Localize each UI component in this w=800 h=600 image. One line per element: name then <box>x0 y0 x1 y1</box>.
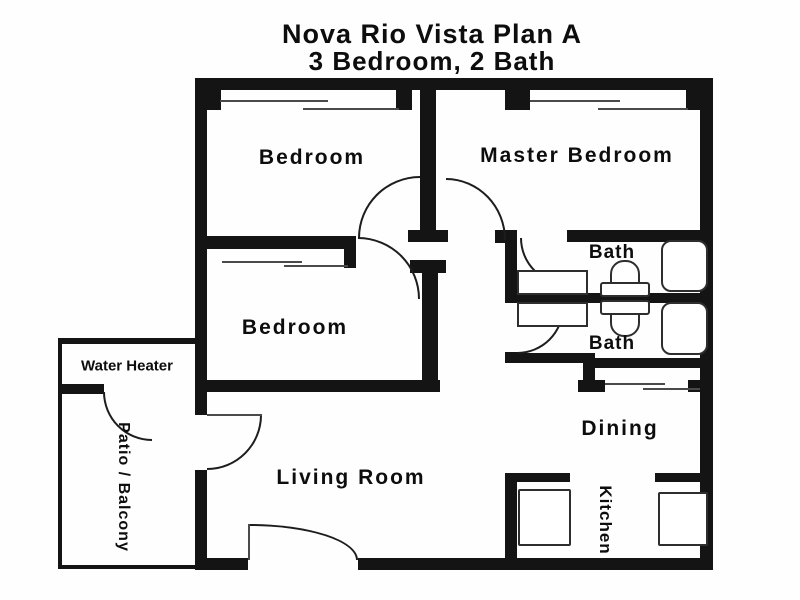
window-pane-line <box>220 100 328 102</box>
room-label-master-bedroom: Master Bedroom <box>480 144 674 168</box>
wall-bedroom-divider <box>420 78 436 240</box>
outer-wall-bottom <box>358 558 713 570</box>
bathtub <box>661 240 708 292</box>
plan-title-line1: Nova Rio Vista Plan A <box>282 20 582 48</box>
closet-slider-line <box>284 265 348 267</box>
room-label-kitchen: Kitchen <box>595 485 615 554</box>
door-arc-bedroom-mid-left <box>358 237 420 299</box>
wall-living-top <box>195 380 440 392</box>
outer-wall-top <box>195 78 713 90</box>
door-leaf-line <box>248 524 250 560</box>
patio-wall-bottom <box>58 565 198 569</box>
bathtub <box>661 302 708 355</box>
stove <box>518 489 571 546</box>
toilet-base <box>600 282 650 297</box>
window-jamb <box>686 90 700 110</box>
closet-slider-line <box>222 261 302 263</box>
door-arc-bedroom-top-left <box>358 176 420 238</box>
wall-water-heater-top <box>58 338 198 344</box>
toilet-base <box>600 300 650 315</box>
room-label-bedroom-mid-left: Bedroom <box>242 316 348 340</box>
room-label-bath-top: Bath <box>589 242 635 264</box>
closet-slider-line <box>643 388 700 390</box>
room-label-dining: Dining <box>581 417 658 441</box>
wall-bath-bottom <box>505 353 595 363</box>
wall-kitchen-left <box>505 473 517 558</box>
wall-central <box>422 262 438 392</box>
wall-closet-cap <box>688 380 700 392</box>
closet-slider-line <box>605 383 665 385</box>
room-label-bedroom-top-left: Bedroom <box>259 146 365 170</box>
bathroom-sink-counter <box>517 270 588 295</box>
wall-sink-stub <box>655 473 700 482</box>
room-label-water-heater: Water Heater <box>81 358 173 375</box>
room-label-patio-balcony: Patio / Balcony <box>114 422 132 552</box>
wall-dining-top <box>595 358 700 368</box>
wall-bath-left <box>505 352 517 363</box>
plan-title: Nova Rio Vista Plan A 3 Bedroom, 2 Bath <box>282 20 582 76</box>
floor-plan: Nova Rio Vista Plan A 3 Bedroom, 2 Bath … <box>0 0 800 600</box>
outer-wall-left <box>195 470 207 570</box>
kitchen-sink-counter <box>658 492 708 546</box>
window-pane-line <box>530 100 620 102</box>
room-label-bath-bottom: Bath <box>589 333 635 355</box>
window-jamb <box>207 90 221 110</box>
window-pane-line <box>598 108 688 110</box>
door-arc-master-bedroom <box>446 178 506 240</box>
window-jamb <box>396 90 412 110</box>
room-label-living-room: Living Room <box>276 466 425 490</box>
bathroom-sink-counter <box>517 302 588 327</box>
wall-water-heater-bottom <box>58 384 104 394</box>
patio-wall-left <box>58 338 62 569</box>
door-leaf-line <box>207 414 262 416</box>
door-arc-patio <box>207 415 262 470</box>
outer-wall-left <box>195 78 207 415</box>
plan-title-line2: 3 Bedroom, 2 Bath <box>282 48 582 75</box>
door-arc-entry <box>250 524 358 560</box>
wall-bedroom1-bottom <box>195 236 348 249</box>
window-jamb <box>505 90 530 110</box>
wall-central-foot <box>410 260 446 273</box>
window-pane-line <box>303 108 399 110</box>
